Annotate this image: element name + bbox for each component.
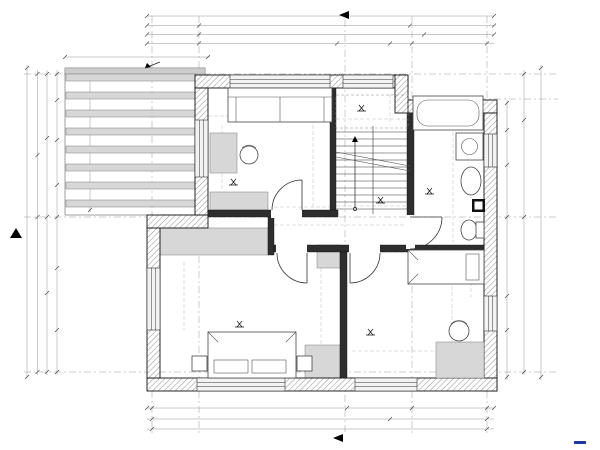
section-s1-icon <box>10 228 22 238</box>
window-dormitor2-west <box>147 268 160 330</box>
section-s2-top-icon <box>339 11 349 19</box>
door-dormitor3 <box>271 180 302 218</box>
washing-machine <box>456 133 483 160</box>
window-dormitor3-west <box>195 120 208 177</box>
section-s2-bottom-icon <box>333 434 343 442</box>
sink <box>461 167 481 195</box>
sheet-title <box>574 440 586 444</box>
bathtub <box>413 96 483 130</box>
pergola <box>65 62 205 215</box>
sofa-dormitor3 <box>228 88 332 122</box>
door-dormitor2 <box>276 244 307 283</box>
window-dormitor1-east <box>484 296 497 331</box>
window-dormitor2-south <box>197 378 285 391</box>
bed-dormitor1 <box>408 250 484 284</box>
desk-dormitor3 <box>210 133 237 173</box>
chair-dormitor3 <box>240 145 258 164</box>
window-stair-north <box>343 75 393 88</box>
window-dormitor3-north <box>230 75 330 88</box>
toilet <box>461 220 484 240</box>
bed-dormitor2 <box>192 332 312 378</box>
desk-dormitor1 <box>436 342 484 378</box>
chair-dormitor1 <box>449 321 469 341</box>
pergola-slats <box>66 74 196 207</box>
window-dormitor1-south <box>355 378 417 391</box>
door-baie <box>406 215 442 249</box>
floor-plan-sheet <box>0 0 600 450</box>
boiler <box>472 199 485 212</box>
door-dormitor1 <box>349 244 380 283</box>
window-baie-east <box>484 134 497 167</box>
floor-plan-drawing <box>0 0 600 450</box>
